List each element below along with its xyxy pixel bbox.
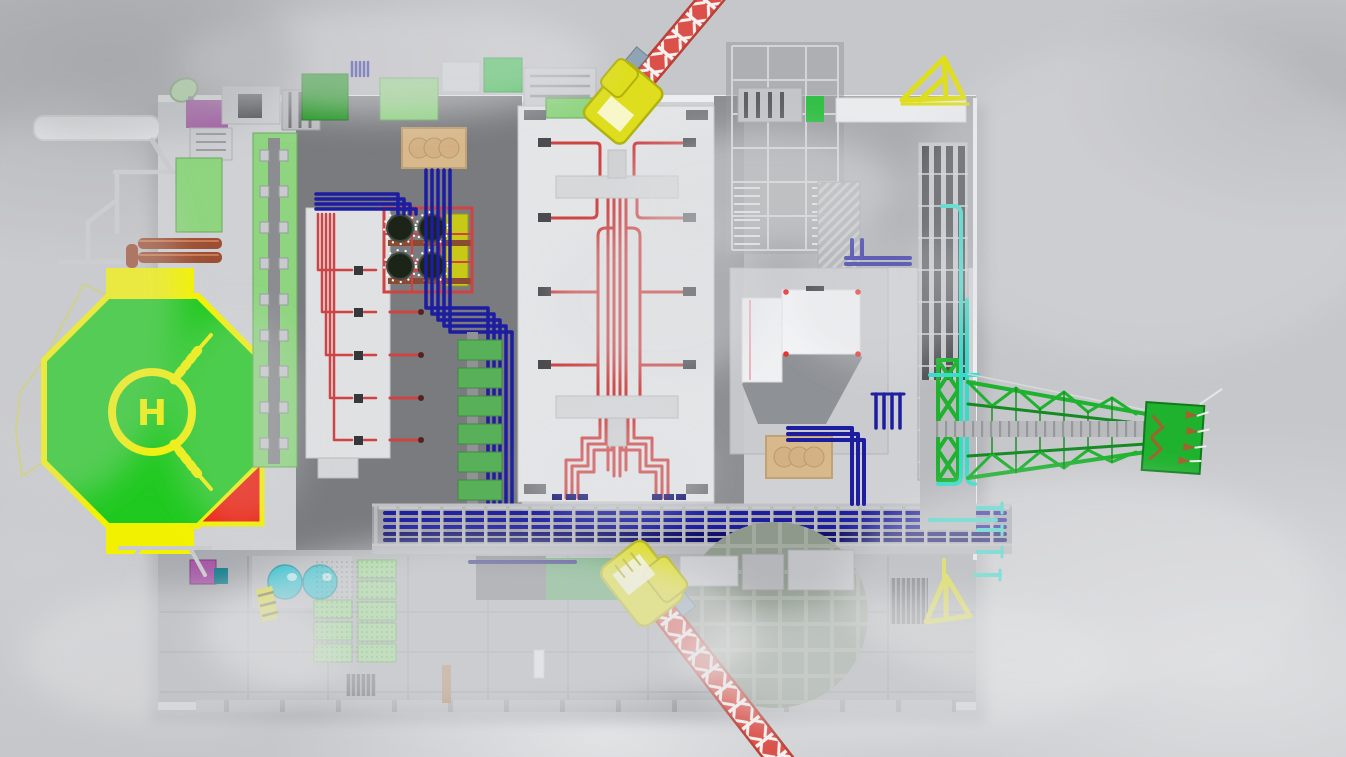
deck-box-2 [742, 554, 784, 590]
tan-tank-bank-left [402, 128, 466, 168]
green-panel-scaffold [806, 96, 824, 122]
boom-walkway-rungs [936, 421, 1148, 437]
tip-mast [1200, 388, 1221, 405]
flare-tip [1142, 384, 1222, 475]
valve-module-foot [318, 458, 358, 478]
green-panel-west [176, 158, 222, 232]
gray-equipment-box [190, 128, 232, 160]
cross-beam-south [556, 396, 678, 418]
teal-box-south [214, 568, 228, 584]
tan-tank-bank-right [766, 436, 832, 478]
beam-stub-north [608, 150, 626, 178]
platform-render: H [0, 0, 1346, 757]
